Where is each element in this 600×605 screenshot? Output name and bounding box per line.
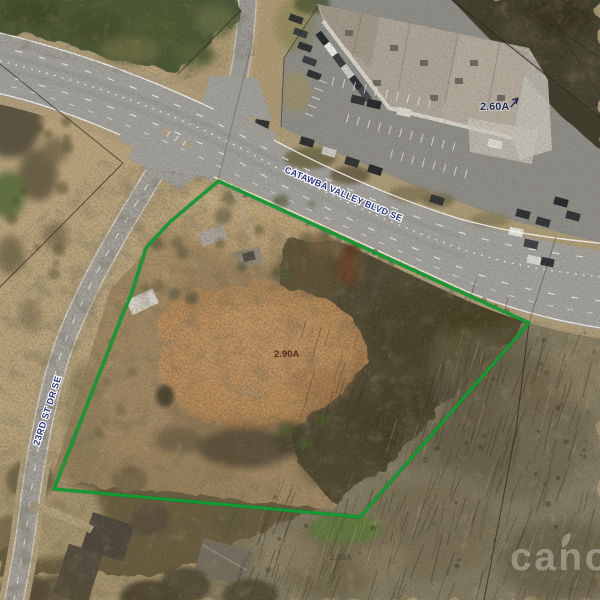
svg-text:2.60A: 2.60A xyxy=(480,101,509,113)
svg-text:2.80A: 2.80A xyxy=(330,553,352,562)
svg-text:2.90A: 2.90A xyxy=(274,349,299,360)
svg-text:canop: canop xyxy=(510,536,600,579)
